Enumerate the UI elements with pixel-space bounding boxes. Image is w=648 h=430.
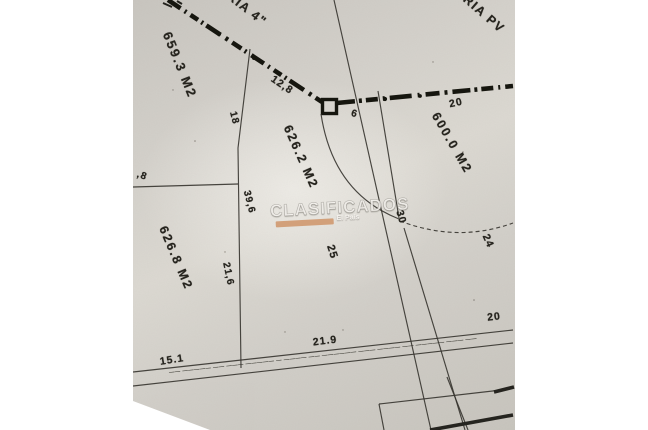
dim-6: 6: [350, 108, 358, 120]
dim-39-6: 39,6: [241, 189, 257, 214]
dim-8-cut: ,8: [135, 169, 148, 183]
dim-20-top: 20: [448, 96, 464, 111]
street-label-top-left: RIA 4": [224, 0, 269, 29]
dim-24: 24: [480, 232, 497, 249]
watermark-subtext: El País: [336, 214, 359, 222]
dim-25: 25: [324, 243, 340, 260]
area-label-626-2: 626.2 M2: [281, 123, 321, 191]
dim-21-6: 21,6: [220, 261, 236, 286]
dim-12-8: 12,8: [269, 73, 296, 97]
survey-map-photo: RIA 4"RIA PV659.3 M2626.2 M2626.8 M2600.…: [0, 0, 648, 430]
street-label-top-right: RIA PV: [460, 0, 507, 36]
dim-18: 18: [227, 110, 241, 125]
area-label-600-0: 600.0 M2: [429, 110, 475, 176]
dim-15-1: 15.1: [159, 352, 185, 368]
dim-21-9: 21.9: [312, 334, 338, 349]
area-label-626-8: 626.8 M2: [156, 224, 196, 292]
dim-20-road: 20: [486, 310, 501, 324]
area-label-659-3: 659.3 M2: [160, 30, 200, 101]
